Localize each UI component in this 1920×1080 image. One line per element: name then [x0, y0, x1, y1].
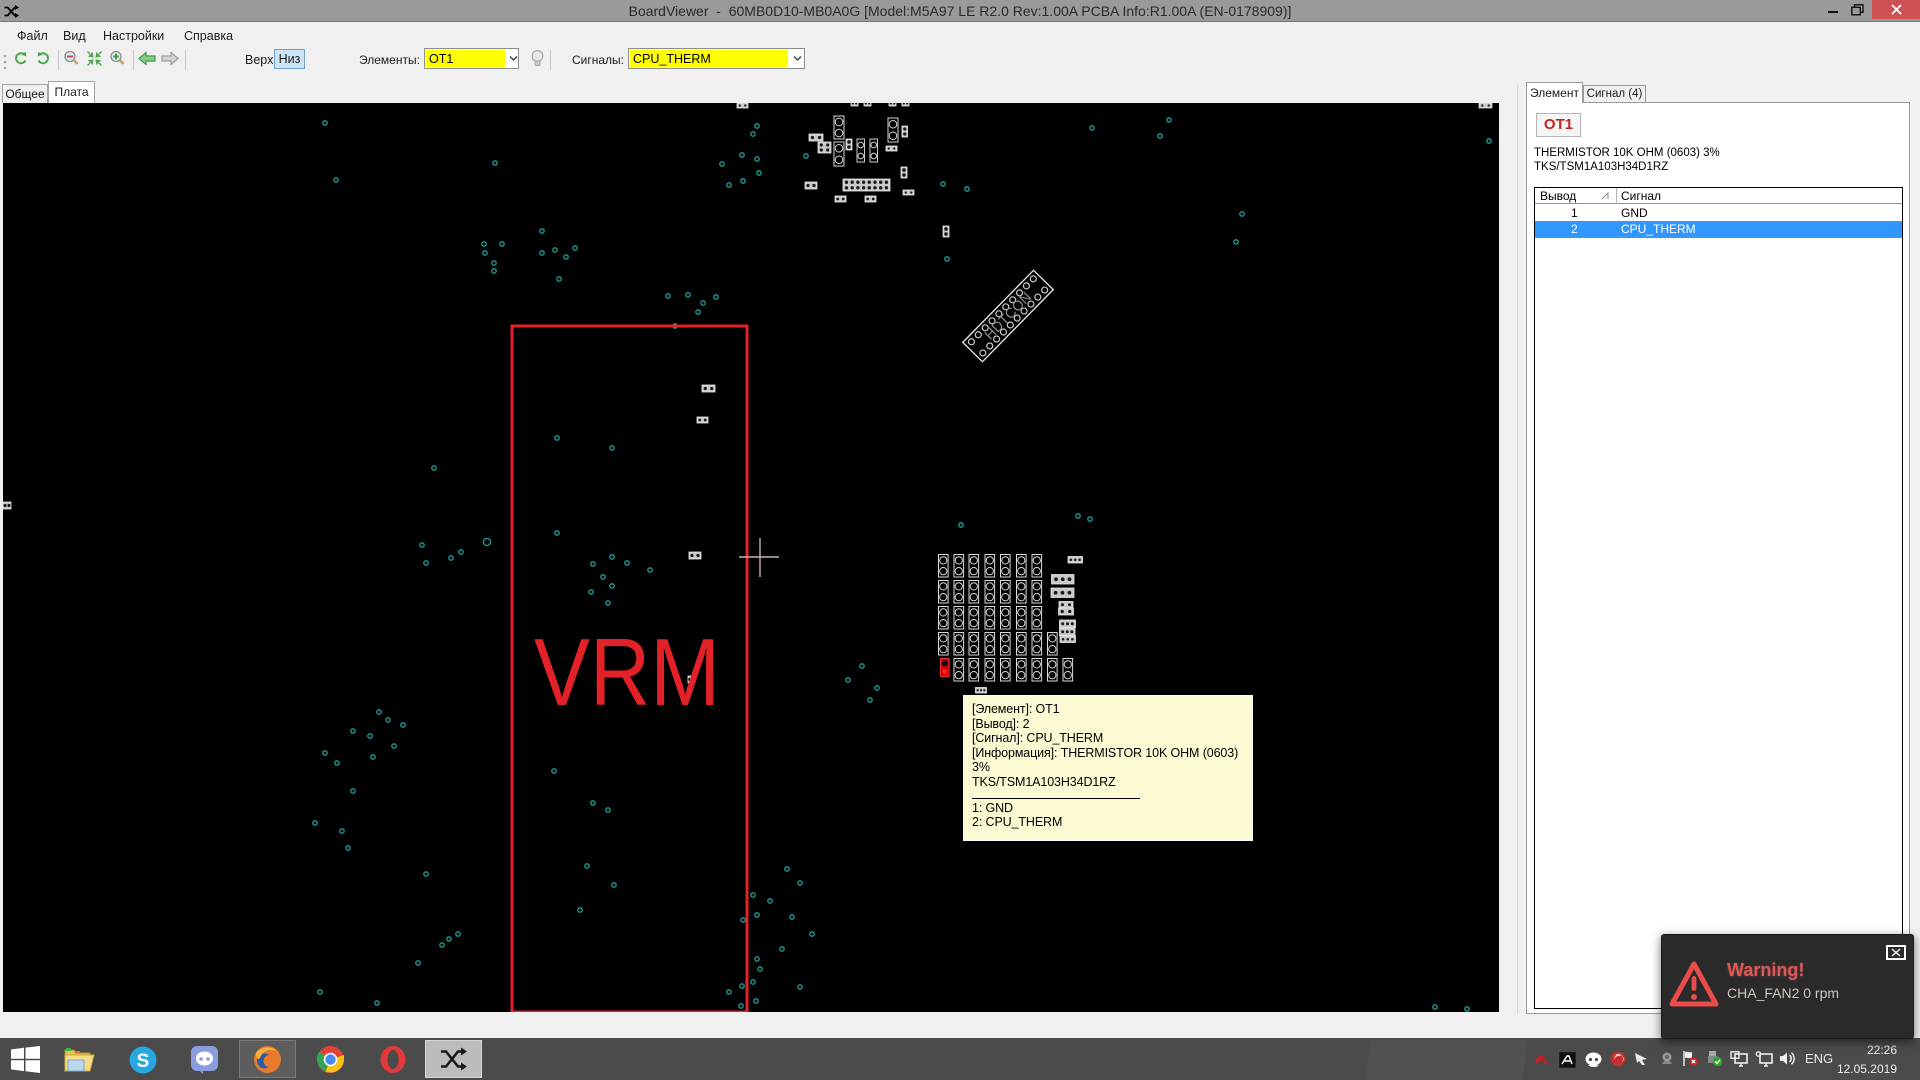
svg-text:VRM: VRM [534, 619, 720, 726]
svg-text:S: S [137, 1051, 150, 1072]
